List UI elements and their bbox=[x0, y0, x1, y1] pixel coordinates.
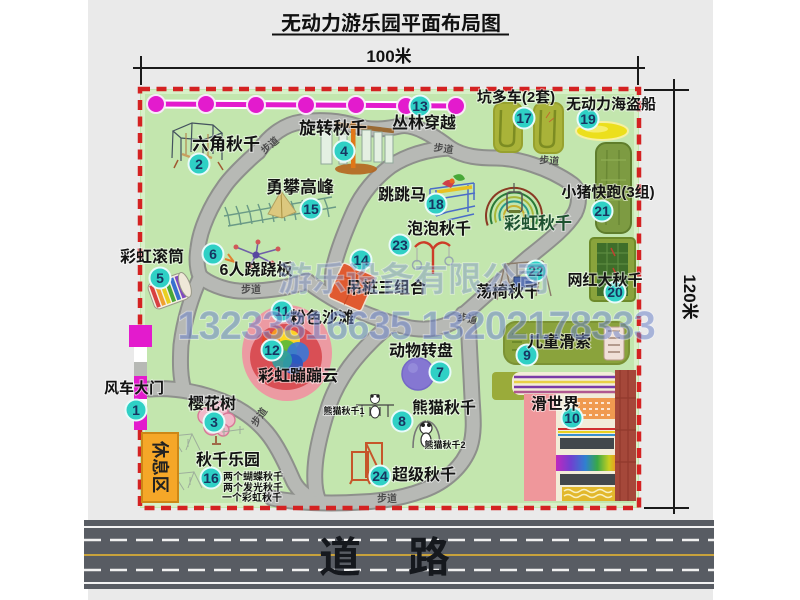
svg-text:17: 17 bbox=[516, 108, 532, 128]
svg-text:滑世界: 滑世界 bbox=[531, 390, 579, 414]
svg-text:7: 7 bbox=[436, 362, 444, 382]
svg-text:1: 1 bbox=[132, 400, 140, 420]
svg-text:跳跳马: 跳跳马 bbox=[378, 181, 426, 205]
svg-text:熊猫秋千: 熊猫秋千 bbox=[412, 394, 476, 418]
svg-text:彩虹滚筒: 彩虹滚筒 bbox=[120, 243, 184, 267]
svg-text:5: 5 bbox=[156, 268, 164, 288]
svg-text:无动力海盗船: 无动力海盗船 bbox=[566, 93, 656, 114]
svg-text:路: 路 bbox=[408, 524, 450, 585]
svg-text:步道: 步道 bbox=[377, 490, 397, 505]
svg-text:休息区: 休息区 bbox=[148, 441, 173, 494]
svg-text:21: 21 bbox=[594, 201, 610, 221]
svg-text:彩虹蹦蹦云: 彩虹蹦蹦云 bbox=[258, 362, 338, 386]
svg-text:无动力游乐园平面布局图: 无动力游乐园平面布局图 bbox=[281, 7, 501, 36]
svg-text:2: 2 bbox=[195, 154, 203, 174]
svg-text:步道: 步道 bbox=[433, 139, 455, 157]
svg-text:风车大门: 风车大门 bbox=[104, 377, 164, 398]
svg-text:熊猫秋千1: 熊猫秋千1 bbox=[323, 404, 364, 417]
svg-text:18: 18 bbox=[428, 194, 444, 214]
svg-text:4: 4 bbox=[340, 141, 348, 161]
svg-text:6: 6 bbox=[209, 244, 217, 264]
svg-text:樱花树: 樱花树 bbox=[188, 390, 236, 414]
svg-text:旋转秋千: 旋转秋千 bbox=[299, 114, 367, 139]
svg-text:勇攀高峰: 勇攀高峰 bbox=[266, 173, 334, 198]
svg-text:泡泡秋千: 泡泡秋千 bbox=[407, 215, 471, 239]
svg-text:超级秋千: 超级秋千 bbox=[392, 461, 456, 485]
svg-text:丛林穿越: 丛林穿越 bbox=[392, 109, 456, 133]
svg-text:一个彩虹秋千: 一个彩虹秋千 bbox=[222, 489, 282, 504]
svg-text:13233816635 13202178333: 13233816635 13202178333 bbox=[177, 293, 655, 351]
svg-text:小猪快跑(3组): 小猪快跑(3组) bbox=[561, 181, 654, 202]
svg-text:120米: 120米 bbox=[679, 274, 704, 319]
svg-text:3: 3 bbox=[210, 412, 218, 432]
svg-text:熊猫秋千2: 熊猫秋千2 bbox=[424, 438, 465, 451]
svg-text:16: 16 bbox=[203, 468, 219, 488]
svg-text:坑多车(2套): 坑多车(2套) bbox=[477, 86, 555, 107]
svg-text:网红大秋千: 网红大秋千 bbox=[567, 269, 642, 290]
svg-text:100米: 100米 bbox=[366, 42, 411, 67]
svg-text:秋千乐园: 秋千乐园 bbox=[196, 446, 260, 470]
svg-text:15: 15 bbox=[303, 199, 319, 219]
svg-text:24: 24 bbox=[372, 466, 388, 486]
svg-text:六角秋千: 六角秋千 bbox=[192, 130, 260, 155]
svg-text:道: 道 bbox=[319, 524, 361, 585]
svg-text:彩虹秋千: 彩虹秋千 bbox=[504, 209, 572, 234]
svg-text:8: 8 bbox=[398, 411, 406, 431]
